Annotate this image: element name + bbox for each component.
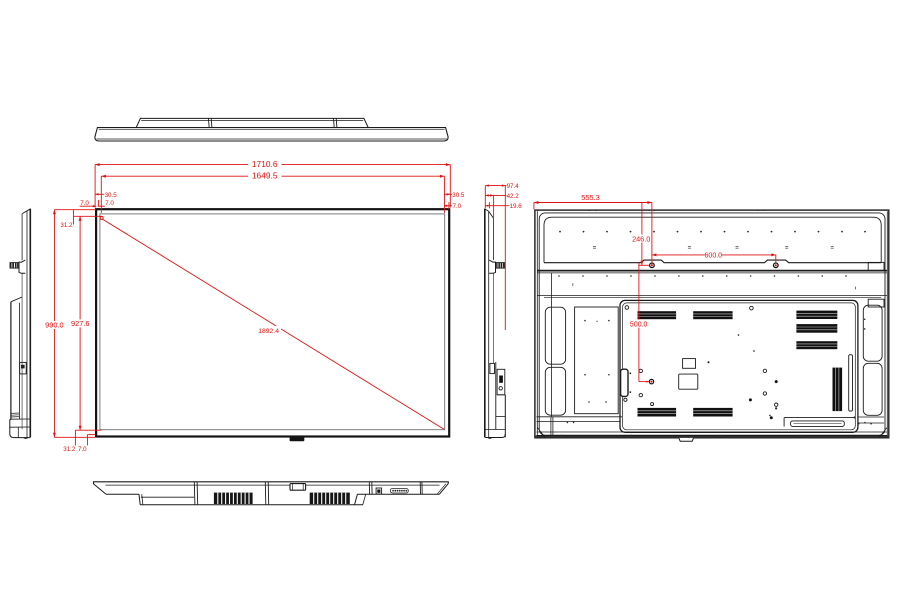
svg-text:31.2: 31.2 bbox=[60, 222, 73, 229]
svg-text:42.2: 42.2 bbox=[507, 193, 520, 200]
svg-text:30.5: 30.5 bbox=[105, 192, 118, 199]
svg-text:7.0: 7.0 bbox=[453, 203, 462, 210]
svg-text:600.0: 600.0 bbox=[705, 253, 723, 260]
svg-text:30.5: 30.5 bbox=[452, 192, 465, 199]
svg-text:1649.5: 1649.5 bbox=[252, 171, 278, 181]
svg-text:555.3: 555.3 bbox=[581, 193, 600, 202]
svg-text:7.0: 7.0 bbox=[105, 200, 114, 207]
svg-text:1710.6: 1710.6 bbox=[252, 159, 278, 169]
svg-text:1892.4: 1892.4 bbox=[258, 328, 279, 335]
svg-text:7.0: 7.0 bbox=[78, 446, 87, 453]
svg-text:97.4: 97.4 bbox=[507, 183, 520, 190]
svg-text:990.0: 990.0 bbox=[45, 321, 64, 330]
svg-text:246.0: 246.0 bbox=[632, 234, 650, 243]
svg-text:500.0: 500.0 bbox=[630, 321, 648, 328]
svg-text:31.2: 31.2 bbox=[63, 446, 76, 453]
svg-text:927.6: 927.6 bbox=[71, 319, 90, 328]
svg-text:19.6: 19.6 bbox=[510, 203, 523, 210]
svg-text:7.0: 7.0 bbox=[80, 200, 89, 207]
